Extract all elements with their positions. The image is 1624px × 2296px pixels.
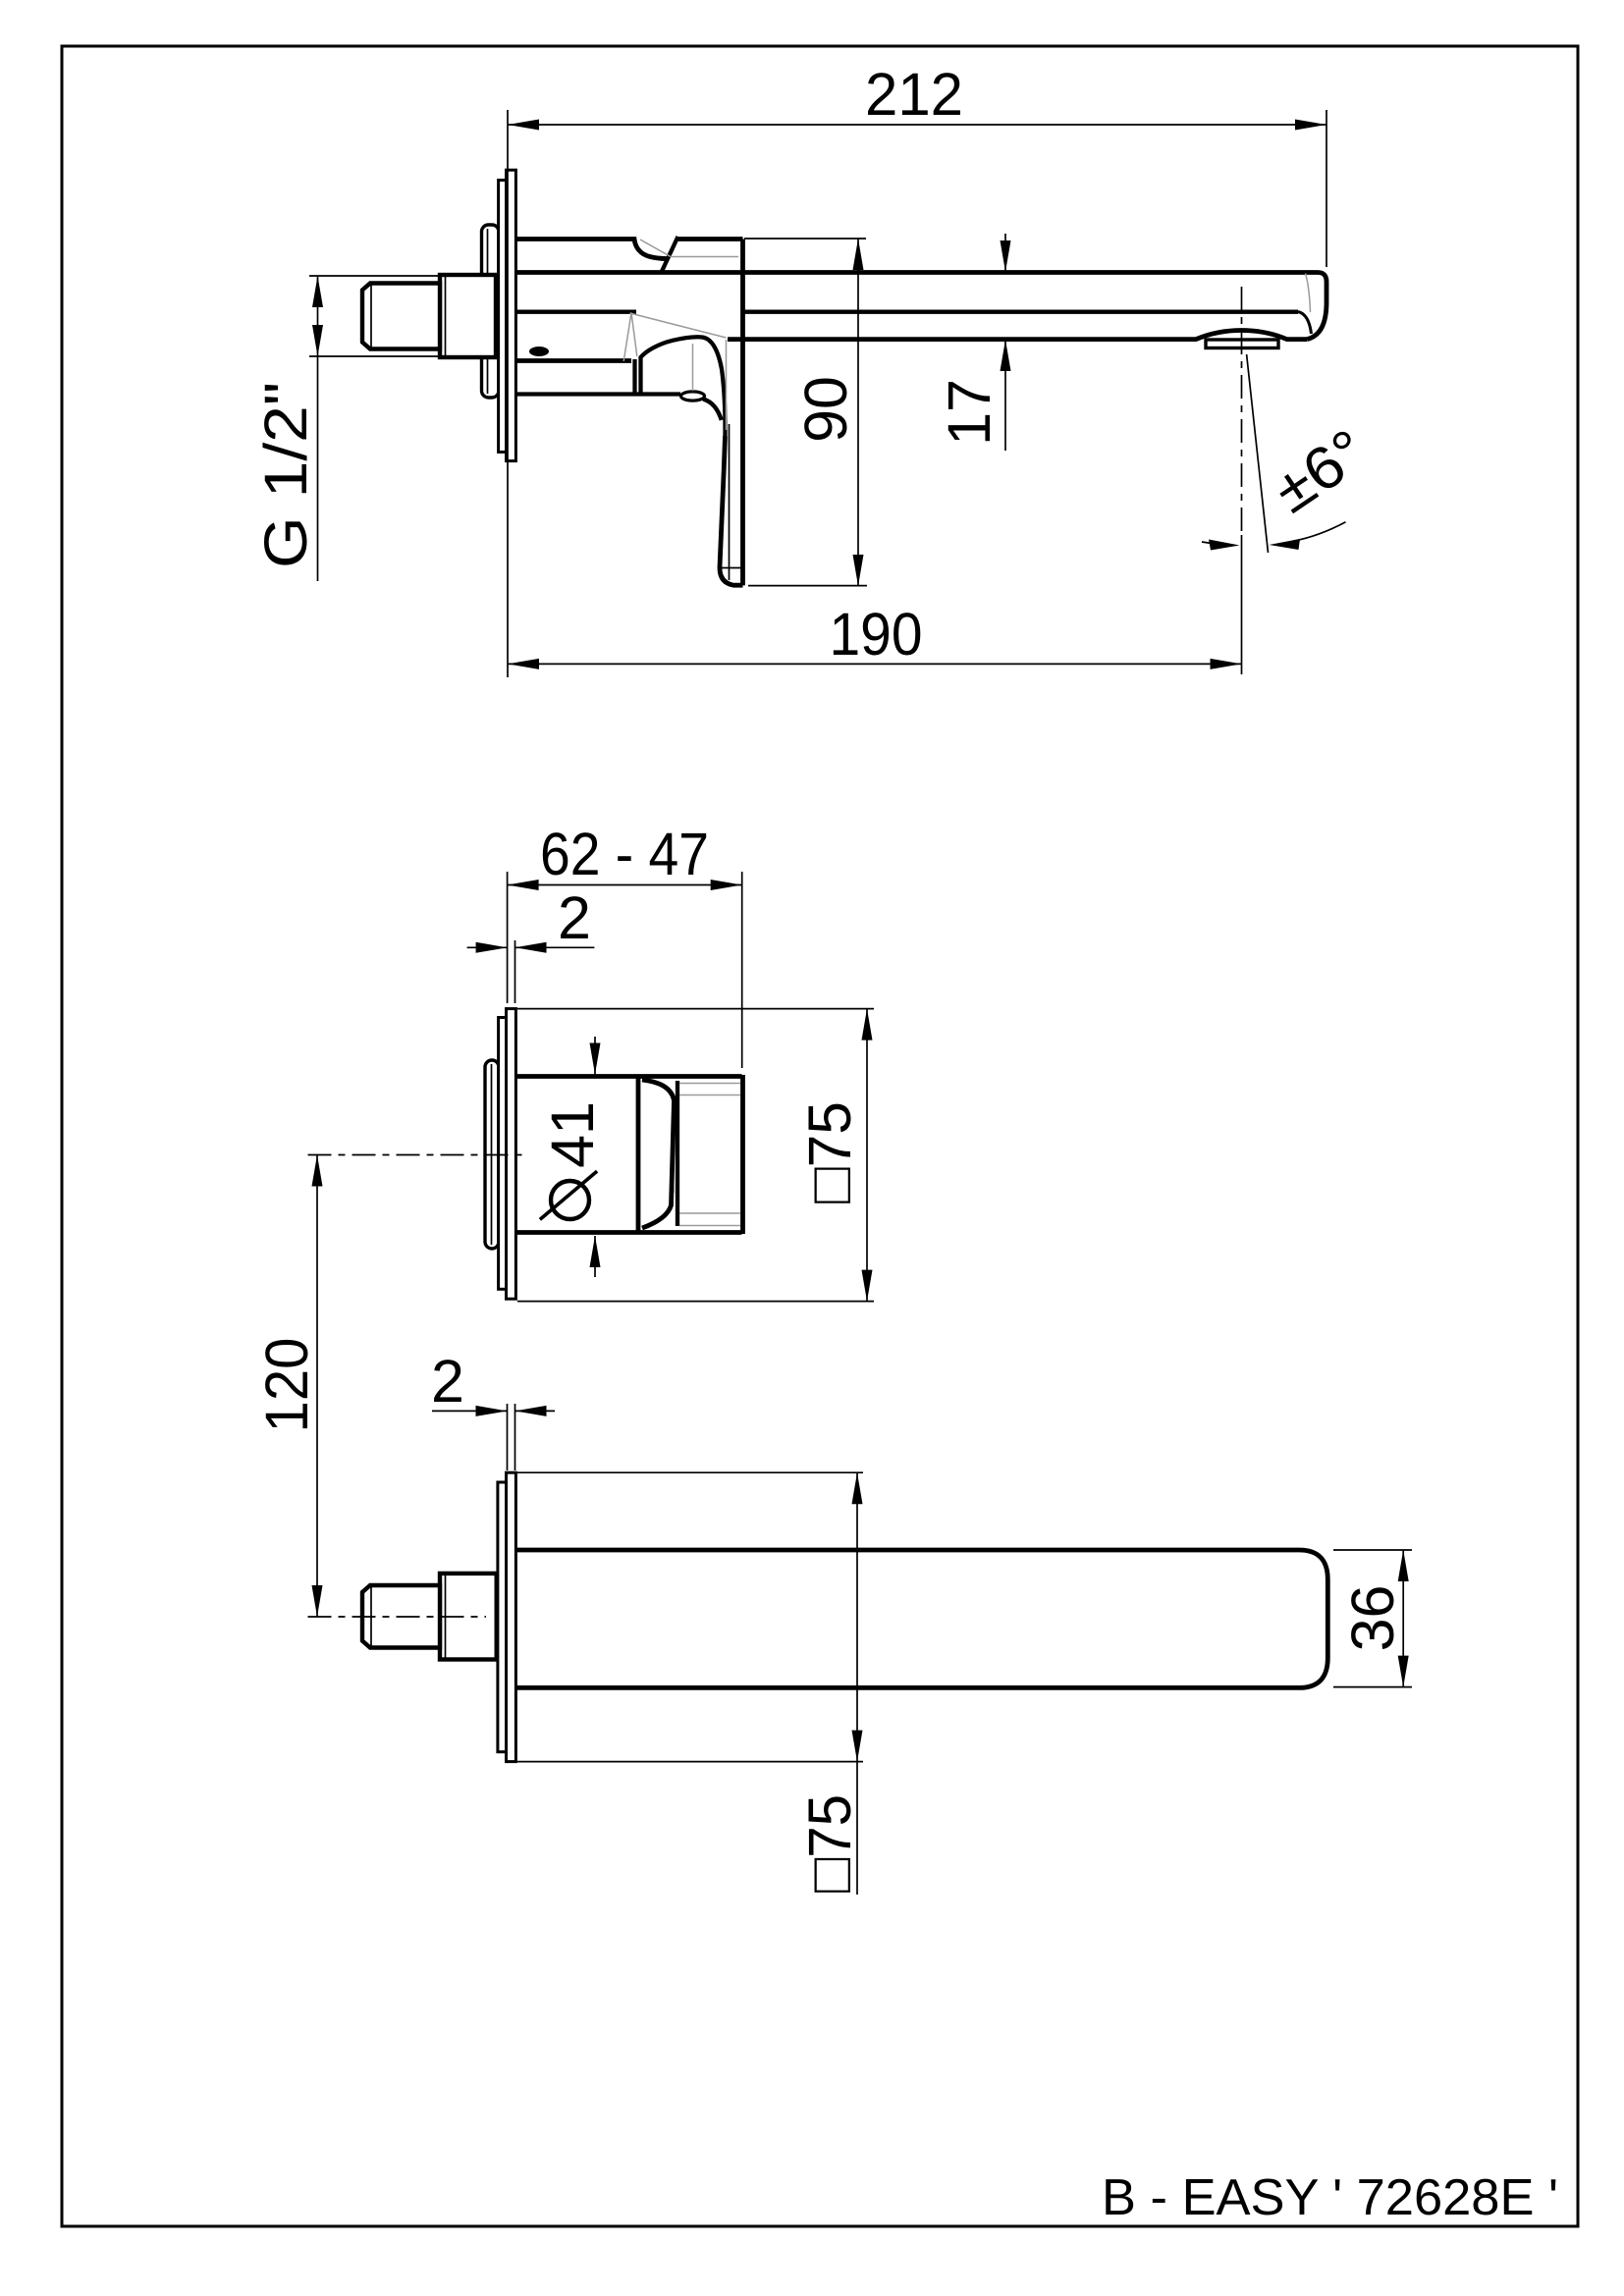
svg-text:120: 120 (253, 1338, 320, 1433)
svg-text:36: 36 (1339, 1585, 1406, 1652)
svg-text:190: 190 (830, 601, 923, 667)
svg-text:□75: □75 (796, 1101, 863, 1203)
svg-text:□75: □75 (796, 1794, 863, 1893)
svg-text:17: 17 (936, 379, 1002, 446)
svg-text:212: 212 (865, 61, 963, 128)
svg-text:2: 2 (558, 884, 591, 951)
svg-text:90: 90 (792, 376, 859, 443)
svg-text:2: 2 (431, 1348, 464, 1415)
svg-text:B - EASY ' 72628E ': B - EASY ' 72628E ' (1102, 2169, 1558, 2226)
svg-text:G 1/2": G 1/2" (252, 382, 319, 568)
svg-text:62 - 47: 62 - 47 (540, 821, 709, 887)
svg-text:41: 41 (539, 1101, 606, 1168)
